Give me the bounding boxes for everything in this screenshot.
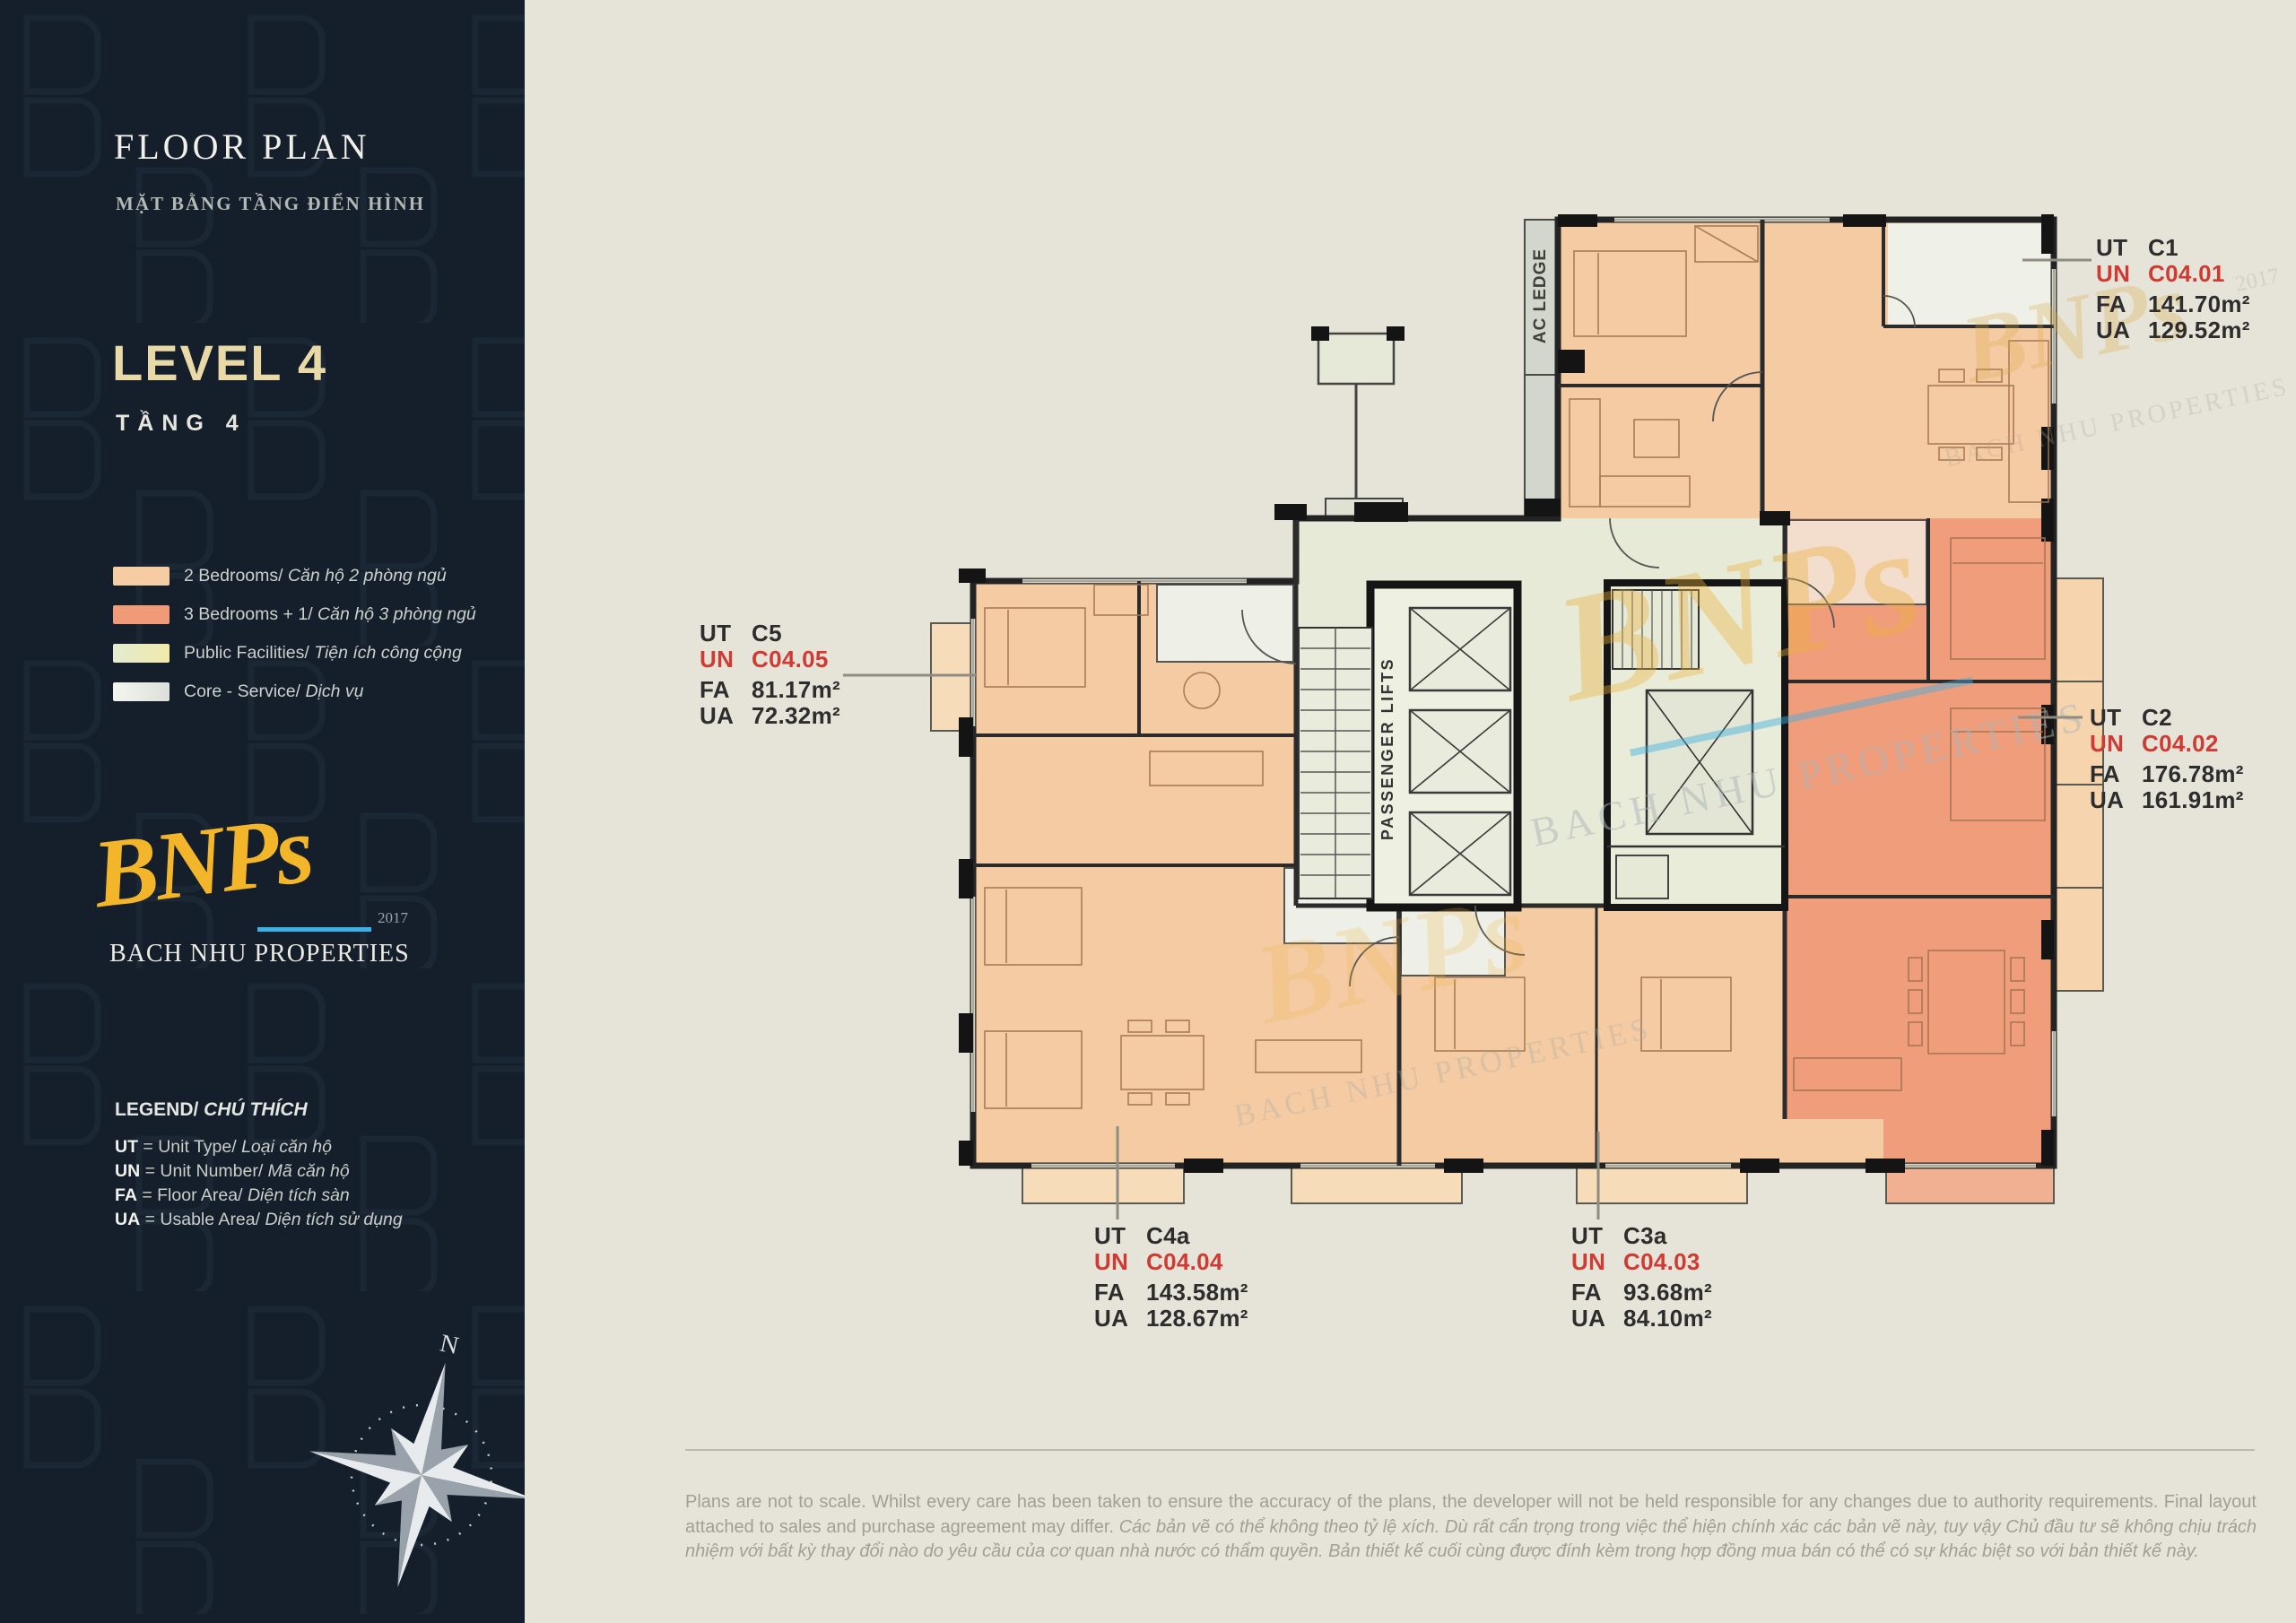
level-title: LEVEL 4 <box>112 334 327 392</box>
legend-title: LEGEND/ CHÚ THÍCH <box>115 1099 308 1121</box>
floor-plan-page: { "sidebar": { "title": "FLOOR PLAN", "s… <box>0 0 2296 1623</box>
legend-swatch-2br <box>113 567 170 586</box>
ac-ledge-label: AC LEDGE <box>1531 248 1550 343</box>
stairs-left <box>1299 628 1372 898</box>
compass-north-label: N <box>438 1329 461 1360</box>
unit-type: UTC1 <box>2096 235 2250 261</box>
sidebar: FLOOR PLAN MẶT BẰNG TẦNG ĐIỂN HÌNH LEVEL… <box>0 0 525 1623</box>
unit-label-c4a: UTC4a UNC04.04 FA143.58m² UA128.67m² <box>1094 1223 1248 1331</box>
floor-area: FA176.78m² <box>2090 761 2244 787</box>
unit-label-c2: UTC2 UNC04.02 FA176.78m² UA161.91m² <box>2090 705 2244 812</box>
unit-type: UTC3a <box>1571 1223 1712 1249</box>
abbr-ut: UT = Unit Type/ Loại căn hộ <box>115 1137 332 1158</box>
unit-number: UNC04.03 <box>1571 1249 1712 1275</box>
ac-ledge-strip: AC LEDGE <box>1525 220 1559 516</box>
passenger-lift-core: PASSENGER LIFTS <box>1370 585 1518 907</box>
page-subtitle: MẶT BẰNG TẦNG ĐIỂN HÌNH <box>116 193 425 215</box>
usable-area: UA161.91m² <box>2090 787 2244 813</box>
legend-swatch-public <box>113 644 170 663</box>
usable-area: UA84.10m² <box>1571 1306 1712 1332</box>
legend-swatch-3br <box>113 605 170 624</box>
usable-area: UA128.67m² <box>1094 1306 1248 1332</box>
legend-swatch-core <box>113 682 170 701</box>
abbr-fa: FA = Floor Area/ Diện tích sàn <box>115 1185 350 1206</box>
unit-number: UNC04.01 <box>2096 261 2250 287</box>
compass-rose: N <box>296 1318 525 1614</box>
unit-number: UNC04.02 <box>2090 731 2244 757</box>
abbr-ua: UA = Usable Area/ Diện tích sử dụng <box>115 1210 403 1230</box>
disclaimer-text: Plans are not to scale. Whilst every car… <box>685 1490 2257 1565</box>
floor-area: FA93.68m² <box>1571 1280 1712 1306</box>
unit-label-c1: UTC1 UNC04.01 FA141.70m² UA129.52m² <box>2096 235 2250 343</box>
usable-area: UA129.52m² <box>2096 317 2250 343</box>
unit-number: UNC04.04 <box>1094 1249 1248 1275</box>
unit-number: UNC04.05 <box>700 647 840 673</box>
floor-area: FA143.58m² <box>1094 1280 1248 1306</box>
unit-label-c3a: UTC3a UNC04.03 FA93.68m² UA84.10m² <box>1571 1223 1712 1331</box>
floor-area: FA141.70m² <box>2096 291 2250 317</box>
page-title: FLOOR PLAN <box>114 126 370 168</box>
unit-type: UTC2 <box>2090 705 2244 731</box>
level-title-vi: TẦNG 4 <box>116 411 247 437</box>
abbr-un: UN = Unit Number/ Mã căn hộ <box>115 1161 350 1182</box>
unit-type: UTC5 <box>700 621 840 647</box>
passenger-lifts-label: PASSENGER LIFTS <box>1378 657 1396 840</box>
usable-area: UA72.32m² <box>700 703 840 729</box>
unit-label-c5: UTC5 UNC04.05 FA81.17m² UA72.32m² <box>700 621 840 728</box>
logo-year: 2017 <box>378 909 408 927</box>
brand-name: BACH NHU PROPERTIES <box>109 940 410 968</box>
footer-divider <box>685 1449 2255 1451</box>
unit-type: UTC4a <box>1094 1223 1248 1249</box>
logo-underline <box>257 927 371 932</box>
vent-shaft <box>1318 334 1403 520</box>
floor-area: FA81.17m² <box>700 677 840 703</box>
